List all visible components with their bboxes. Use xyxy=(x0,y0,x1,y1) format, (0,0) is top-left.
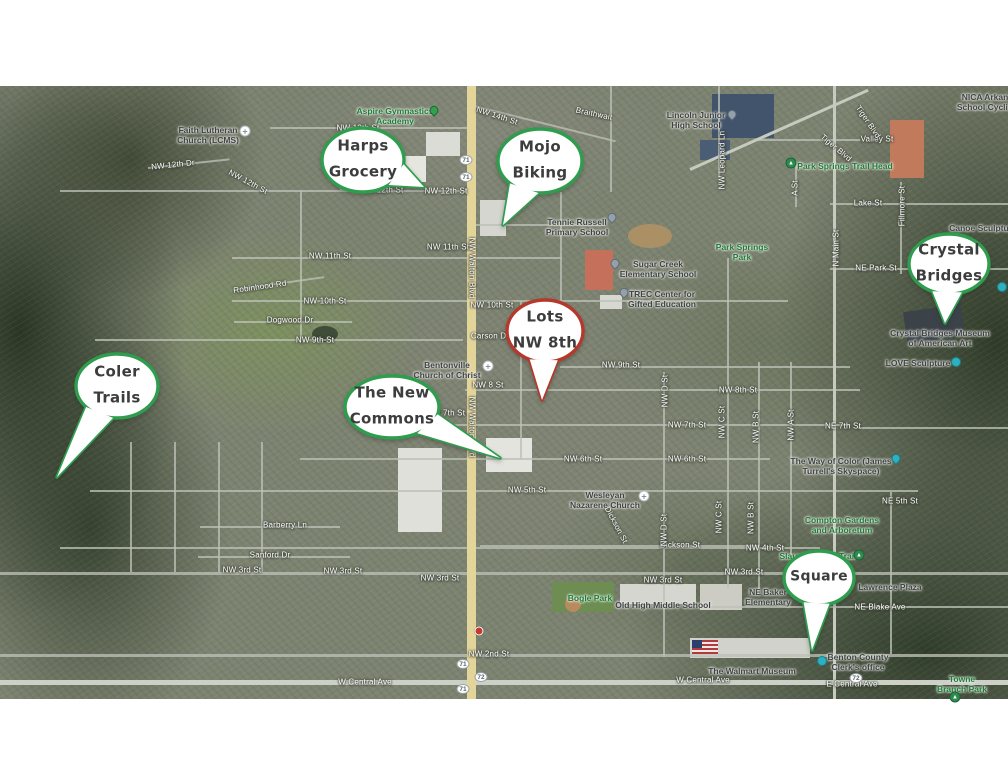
map-label-street: NW 3rd St xyxy=(421,573,460,582)
map-label-street: NW 9th St xyxy=(602,360,640,369)
map-label-street: W Central Ave xyxy=(676,675,730,684)
map-label-street: NW A St xyxy=(786,409,795,440)
map-label-poi: Lawrence Plaza xyxy=(858,582,921,592)
tree-green-icon: ▲ xyxy=(786,158,797,169)
road-segment xyxy=(758,362,760,590)
map-label-park: Park Springs Trail Head xyxy=(797,161,892,171)
map-label-street: Fillmore St xyxy=(897,186,906,226)
map-label-street: NE 5th St xyxy=(882,496,918,505)
map-label-poi: BentonvilleChurch of Christ xyxy=(413,360,480,380)
map-label-park: Park SpringsPark xyxy=(716,242,768,262)
church-icon: + xyxy=(483,361,494,372)
map-label-street: NE Park St xyxy=(855,263,897,272)
road-segment xyxy=(480,545,760,547)
shield-icon: 72 xyxy=(475,672,488,682)
map-label-street: NW 3rd St xyxy=(725,567,764,576)
map-label-street: NW D St xyxy=(660,375,669,408)
road-segment xyxy=(560,192,562,302)
map-label-street: NW Leopard Ln xyxy=(717,131,726,190)
building-block xyxy=(480,200,506,236)
flag-mural-canton xyxy=(692,640,702,648)
road-segment xyxy=(520,301,522,459)
map-label-park: Aspire GymnasticsAcademy xyxy=(356,106,433,126)
map-label-park: Compton Gardensand Arboretum xyxy=(805,515,879,535)
map-label-park: Slaughter Pen Trail xyxy=(780,551,857,561)
map-label-street: Carson Dr xyxy=(471,331,509,340)
map-label-poi: WesleyanNazarene Church xyxy=(570,490,640,510)
map-label-poi: Canoe Sculpture xyxy=(949,223,1008,233)
building-block xyxy=(600,295,622,309)
map-label-poi: Lincoln JuniorHigh School xyxy=(667,110,726,130)
shield-icon: 71 xyxy=(460,172,473,182)
map-label-street: NW 7th St xyxy=(427,408,465,417)
map-label-street: NW 12th St xyxy=(361,185,404,194)
map-label-poi: The Walmart Museum xyxy=(708,666,796,676)
map-label-street: Dickson St xyxy=(602,505,629,545)
map-label-street: NW C St xyxy=(717,406,726,439)
map-label-poi: NE BakerElementary xyxy=(745,587,791,607)
map-label-street: NW 11th St xyxy=(427,242,469,251)
dot-red-icon xyxy=(475,627,484,636)
map-label-street: NW 3rd St xyxy=(644,575,683,584)
map-label-street: NW 8th St xyxy=(719,385,757,394)
shield-icon: 71 xyxy=(457,684,470,694)
map-label-street: NW 12th St xyxy=(425,186,468,195)
map-label-street: NW Walton Blvd xyxy=(467,397,476,458)
circ-teal-icon xyxy=(817,656,827,666)
map-label-street: Tiger Blvd xyxy=(819,132,854,163)
map-label-street: NW 2nd St xyxy=(469,649,509,658)
road-segment xyxy=(727,258,729,588)
map-label-street: NW 6th St xyxy=(668,454,706,463)
dot-red-icon xyxy=(407,177,416,186)
map-label-street: NW 10th St xyxy=(304,296,347,305)
map-label-poi: Sugar CreekElementary School xyxy=(620,259,697,279)
map-label-street: NW 7th St xyxy=(668,420,706,429)
map-label-street: NW B St xyxy=(751,411,760,443)
map-label-poi: Benton CountyClerk's office xyxy=(828,652,889,672)
road-segment xyxy=(833,86,836,699)
map-label-poi: NICA ArkanSchool Cyclin xyxy=(957,92,1008,112)
map-label-poi: The Way of Color (JamesTurrell's Skyspac… xyxy=(790,456,891,476)
road-segment xyxy=(340,128,342,190)
church-icon: + xyxy=(240,126,251,137)
shield-icon: 72 xyxy=(850,673,863,683)
map-label-street: W Central Ave xyxy=(338,677,392,686)
map-label-park: TowneBranch Park xyxy=(937,674,987,694)
road-segment xyxy=(0,572,1008,575)
circ-teal-icon xyxy=(997,282,1007,292)
tree-green-icon: ▲ xyxy=(854,550,865,561)
map-label-street: Braithwait xyxy=(575,106,613,123)
map-label-street: NW 14th St xyxy=(475,105,519,127)
tree-green-icon: ▲ xyxy=(950,692,961,703)
map-label-park: Bogle Park xyxy=(568,593,612,603)
road-segment xyxy=(890,492,892,654)
map-label-poi: LOVE Sculpture xyxy=(886,358,951,368)
map-label-street: Sanford Dr xyxy=(250,550,291,559)
map-label-street: NW D St xyxy=(659,514,668,547)
map-label-poi: TREC Center forGifted Education xyxy=(628,289,696,309)
map-label-street: Barberry Ln xyxy=(263,520,307,529)
map-label-poi: Crystal Bridges Museumof American Art xyxy=(890,328,990,348)
road-segment xyxy=(755,139,860,141)
map-label-street: NW 5th St xyxy=(508,485,546,494)
map-label-poi: Old High Middle School xyxy=(615,600,710,610)
map-label-street: NW 10th St xyxy=(471,300,514,309)
map-label-street: Dogwood Dr xyxy=(267,315,313,324)
map-label-street: NW 3rd St xyxy=(223,565,262,574)
map-label-street: NW 4th St xyxy=(746,543,784,552)
road-segment xyxy=(218,442,220,572)
map-label-poi: Tennie RussellPrimary School xyxy=(546,217,608,237)
map-overlay: NW 13th StNW 14th StNW 12th StNW 12th St… xyxy=(0,0,1008,778)
road-segment xyxy=(174,442,176,572)
road-segment xyxy=(610,86,612,192)
road-segment xyxy=(90,490,918,492)
map-label-street: NW C St xyxy=(714,501,723,534)
circ-teal-icon xyxy=(951,357,961,367)
shield-icon: 71 xyxy=(460,155,473,165)
building-block xyxy=(890,120,924,178)
listing-map[interactable]: NW 13th StNW 14th StNW 12th StNW 12th St… xyxy=(0,0,1008,778)
map-label-street: NW Walton Blvd xyxy=(467,238,476,299)
building-block xyxy=(486,438,532,472)
building-block xyxy=(585,250,613,290)
map-label-street: NE 7th St xyxy=(825,421,861,430)
map-label-street: NW B St xyxy=(746,502,755,534)
map-label-street: NW 9th St xyxy=(296,335,334,344)
map-label-street: A St xyxy=(790,180,799,195)
map-label-poi: Faith LutheranChurch (LCMS) xyxy=(177,125,239,145)
road-segment xyxy=(858,427,1008,429)
church-icon: + xyxy=(639,491,650,502)
road-segment xyxy=(95,339,463,341)
map-label-street: NW 3rd St xyxy=(324,566,363,575)
map-label-street: NW 6th St xyxy=(564,454,602,463)
map-label-street: Robinhood Rd xyxy=(233,279,287,296)
building-block xyxy=(426,132,460,156)
map-label-street: NW 8 St xyxy=(472,380,503,389)
map-label-street: NE Blake Ave xyxy=(854,602,905,611)
map-label-street: NW 11th St xyxy=(309,251,351,260)
map-label-street: Lake St xyxy=(854,198,883,207)
map-label-street: NW 12th Dr xyxy=(151,158,196,172)
road-segment xyxy=(232,257,562,259)
map-label-street: N Main St xyxy=(831,230,840,267)
road-segment xyxy=(380,424,850,426)
road-segment xyxy=(130,442,132,572)
building-block xyxy=(628,224,672,248)
shield-icon: 71 xyxy=(457,659,470,669)
